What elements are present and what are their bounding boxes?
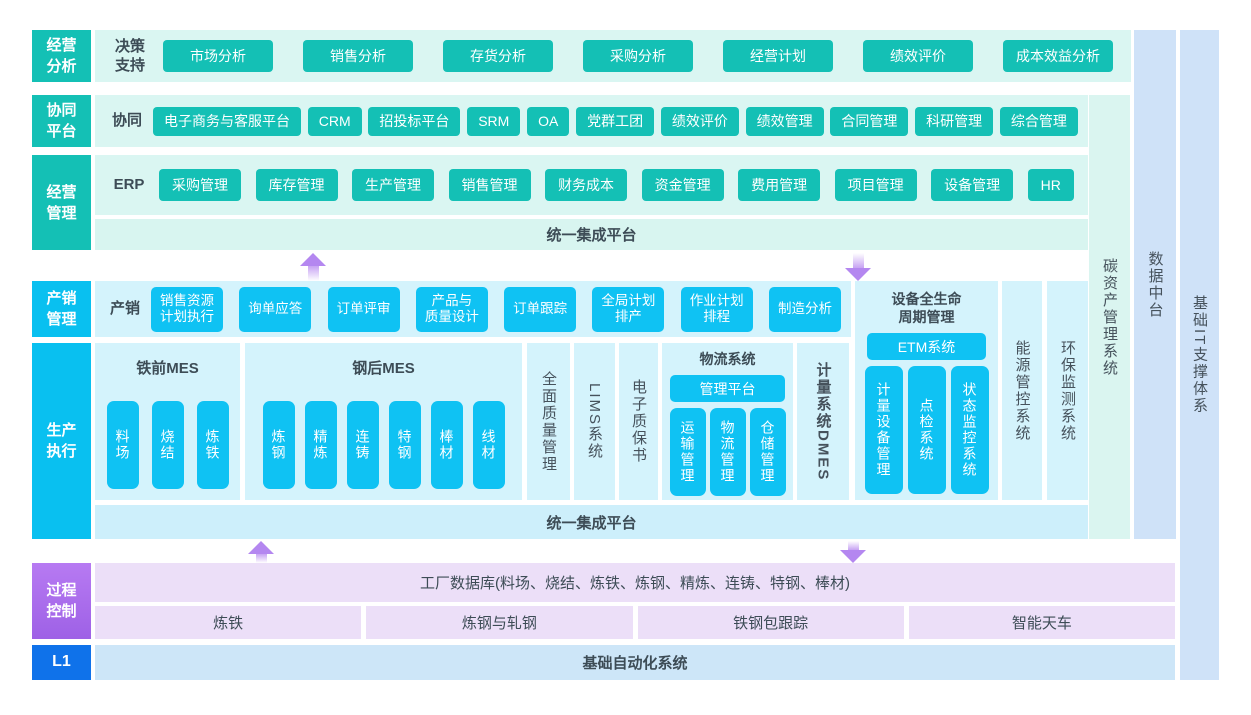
row-label-process-control: 过程 控制 [32,563,91,639]
energy-management-column: 能源管控系统 [1002,281,1042,500]
process-cell: 铁钢包跟踪 [638,606,904,639]
unit-tile: 连铸 [347,401,379,489]
subsystem-tile: 状态监控系统 [951,366,989,494]
module-tile: 订单评审 [328,287,400,332]
subsystem-tile: 计量设备管理 [865,366,903,494]
unit-tile: 炼铁 [197,401,229,489]
module-tile: 财务成本 [545,169,627,201]
module-tile: OA [527,107,569,136]
collaboration-sublabel: 协同 [107,111,147,131]
environment-monitoring-column: 环保监测系统 [1047,281,1088,500]
equipment-subsystems: 计量设备管理点检系统状态监控系统 [855,366,998,494]
etm-system-tile: ETM系统 [867,333,986,360]
row-label-collaboration-platform: 协同 平台 [32,95,91,147]
subsystem-tile: 仓储管理 [750,408,786,496]
module-tile: 生产管理 [352,169,434,201]
process-cell: 炼钢与轧钢 [366,606,632,639]
module-tile: 项目管理 [835,169,917,201]
module-tile: 采购分析 [583,40,693,72]
business-analysis-modules: 市场分析销售分析存货分析采购分析经营计划绩效评价成本效益分析 [163,40,1113,72]
up-arrow-icon [248,541,274,563]
unit-tile: 炼钢 [263,401,295,489]
e-quality-cert-column: 电子质保书 [619,343,658,500]
factory-database-band: 工厂数据库(料场、烧结、炼铁、炼钢、精炼、连铸、特钢、棒材) [95,563,1175,602]
module-tile: SRM [467,107,520,136]
subsystem-tile: 物流管理 [710,408,746,496]
integration-platform-band-lower: 统一集成平台 [95,505,1088,539]
unit-tile: 特钢 [389,401,421,489]
iron-mes-units: 料场烧结炼铁 [95,401,240,489]
module-tile: 绩效评价 [863,40,973,72]
module-tile: 设备管理 [931,169,1013,201]
process-control-cells: 炼铁炼钢与轧钢铁钢包跟踪智能天车 [95,606,1175,639]
it-support-column: 基础IT支撑体系 [1180,30,1219,680]
module-tile: 绩效评价 [661,107,739,136]
module-tile: 全局计划 排产 [592,287,664,332]
module-tile: 综合管理 [1000,107,1078,136]
carbon-asset-column: 碳资产管理系统 [1089,95,1130,539]
down-arrow-icon [845,253,871,281]
process-cell: 智能天车 [909,606,1175,639]
integration-platform-band-upper: 统一集成平台 [95,219,1088,250]
row-label-l1: L1 [32,645,91,680]
module-tile: 库存管理 [256,169,338,201]
module-tile: 采购管理 [159,169,241,201]
metering-dmes-column: 计量系统DMES [797,343,849,500]
data-middle-platform-column: 数据中台 [1134,30,1176,539]
unit-tile: 烧结 [152,401,184,489]
module-tile: 绩效管理 [746,107,824,136]
module-tile: 产品与 质量设计 [416,287,488,332]
total-quality-column: 全面质量管理 [527,343,570,500]
row-label-sales-production: 产销 管理 [32,281,91,337]
module-tile: 科研管理 [915,107,993,136]
row-label-production-execution: 生产 执行 [32,343,91,539]
erp-panel: ERP 采购管理库存管理生产管理销售管理财务成本资金管理费用管理项目管理设备管理… [95,155,1088,215]
module-tile: HR [1028,169,1074,201]
down-arrow-icon [840,541,866,563]
iron-mes-panel: 铁前MES 料场烧结炼铁 [95,343,240,500]
steel-mes-units: 炼钢精炼连铸特钢棒材线材 [245,401,522,489]
row-label-business-analysis: 经营 分析 [32,30,91,82]
module-tile: 成本效益分析 [1003,40,1113,72]
steel-enterprise-architecture-diagram: 经营 分析 协同 平台 经营 管理 产销 管理 生产 执行 过程 控制 L1 决… [0,0,1251,715]
logistics-panel: 物流系统 管理平台 运输管理物流管理仓储管理 [662,343,793,500]
steel-mes-panel: 钢后MES 炼钢精炼连铸特钢棒材线材 [245,343,522,500]
module-tile: CRM [308,107,362,136]
process-cell: 炼铁 [95,606,361,639]
unit-tile: 线材 [473,401,505,489]
module-tile: 资金管理 [642,169,724,201]
sales-production-modules: 销售资源 计划执行询单应答订单评审产品与 质量设计订单跟踪全局计划 排产作业计划… [151,287,841,332]
collaboration-panel: 协同 电子商务与客服平台CRM招投标平台SRMOA党群工团绩效评价绩效管理合同管… [95,95,1088,147]
unit-tile: 精炼 [305,401,337,489]
subsystem-tile: 点检系统 [908,366,946,494]
logistics-platform-tile: 管理平台 [670,375,785,402]
business-analysis-panel: 决策 支持 市场分析销售分析存货分析采购分析经营计划绩效评价成本效益分析 [95,30,1131,82]
module-tile: 销售分析 [303,40,413,72]
module-tile: 销售管理 [449,169,531,201]
base-automation-band: 基础自动化系统 [95,645,1175,680]
erp-sublabel: ERP [107,175,151,195]
unit-tile: 棒材 [431,401,463,489]
module-tile: 党群工团 [576,107,654,136]
unit-tile: 料场 [107,401,139,489]
iron-mes-title: 铁前MES [95,359,240,379]
equipment-lifecycle-panel: 设备全生命 周期管理 ETM系统 计量设备管理点检系统状态监控系统 [855,281,998,500]
module-tile: 费用管理 [738,169,820,201]
sales-production-sublabel: 产销 [105,299,145,319]
sales-production-panel: 产销 销售资源 计划执行询单应答订单评审产品与 质量设计订单跟踪全局计划 排产作… [95,281,851,337]
decision-support-sublabel: 决策 支持 [107,37,153,76]
lims-system-column: LIMS系统 [574,343,615,500]
collaboration-modules: 电子商务与客服平台CRM招投标平台SRMOA党群工团绩效评价绩效管理合同管理科研… [153,107,1078,136]
logistics-title: 物流系统 [662,350,793,368]
equipment-lifecycle-title: 设备全生命 周期管理 [855,290,998,326]
module-tile: 作业计划 排程 [681,287,753,332]
module-tile: 电子商务与客服平台 [153,107,301,136]
module-tile: 订单跟踪 [504,287,576,332]
module-tile: 销售资源 计划执行 [151,287,223,332]
erp-modules: 采购管理库存管理生产管理销售管理财务成本资金管理费用管理项目管理设备管理HR [159,169,1074,201]
module-tile: 制造分析 [769,287,841,332]
logistics-subsystems: 运输管理物流管理仓储管理 [662,408,793,496]
steel-mes-title: 钢后MES [245,359,522,379]
module-tile: 询单应答 [239,287,311,332]
module-tile: 经营计划 [723,40,833,72]
module-tile: 存货分析 [443,40,553,72]
module-tile: 合同管理 [830,107,908,136]
subsystem-tile: 运输管理 [670,408,706,496]
row-label-business-management: 经营 管理 [32,155,91,250]
module-tile: 市场分析 [163,40,273,72]
module-tile: 招投标平台 [368,107,460,136]
up-arrow-icon [300,253,326,281]
